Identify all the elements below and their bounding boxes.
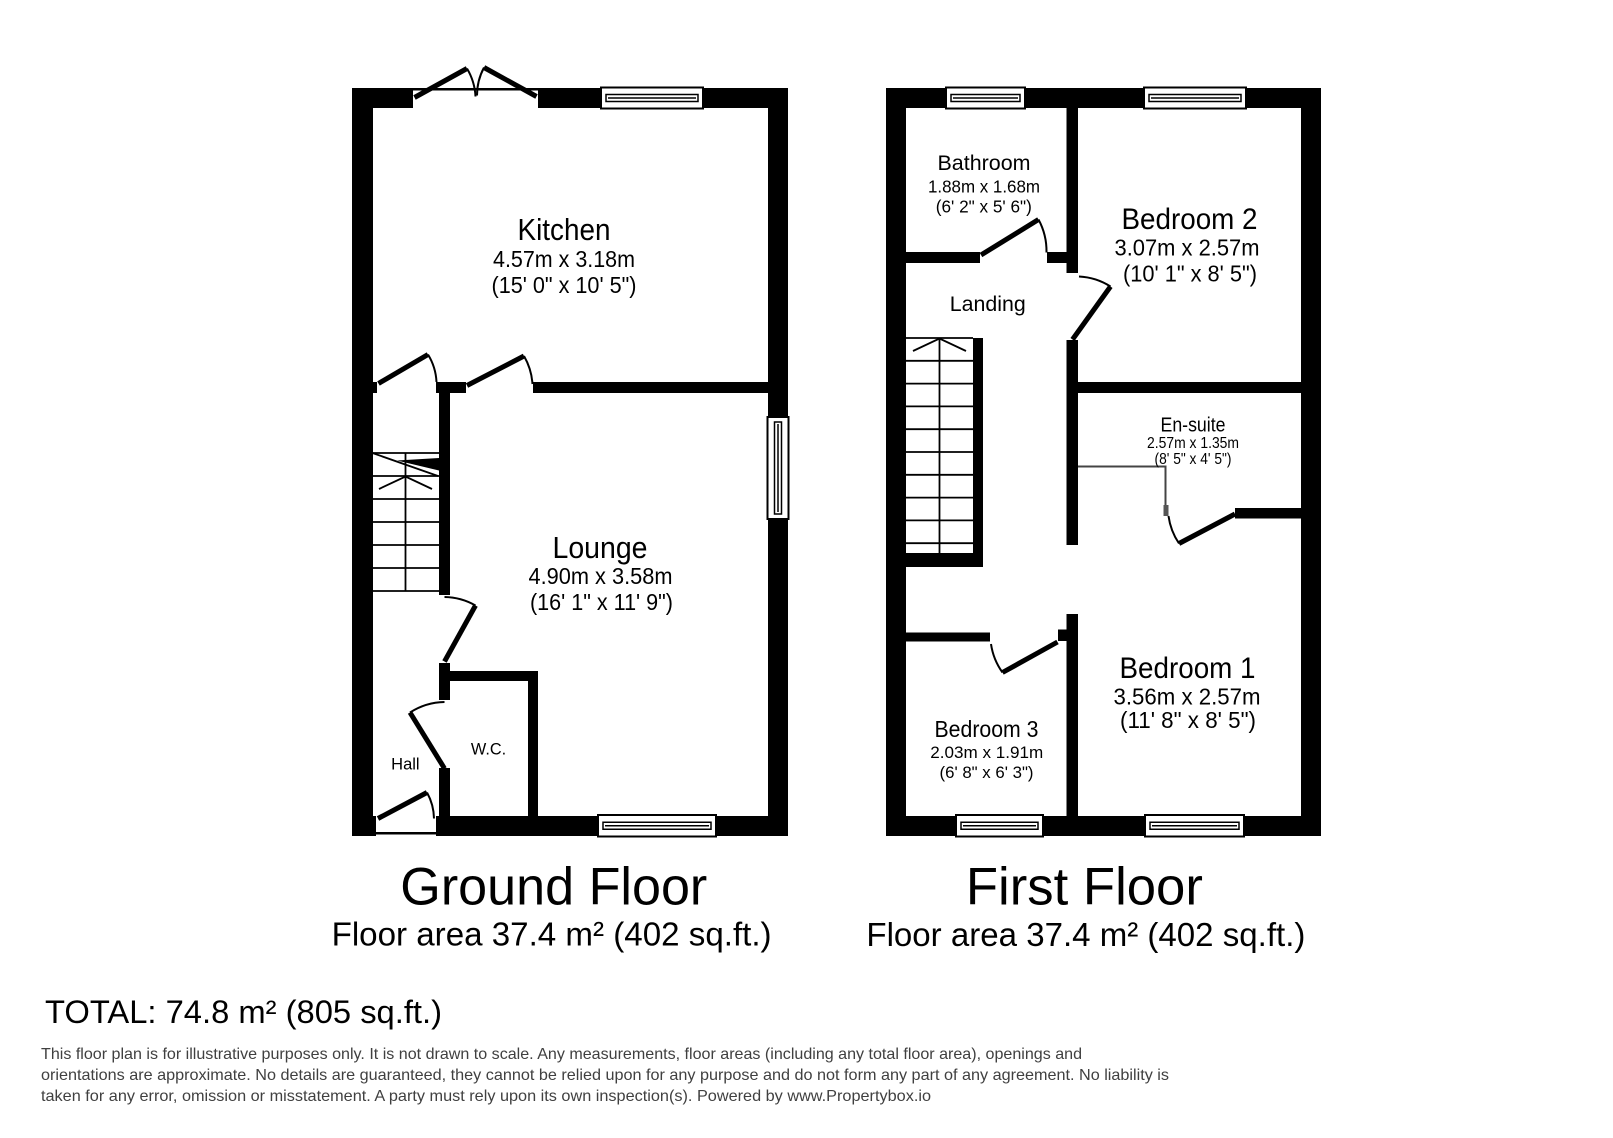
svg-text:Bedroom 1: Bedroom 1 — [1120, 652, 1256, 685]
svg-text:orientations are approximate.: orientations are approximate. No details… — [41, 1067, 1169, 1084]
svg-text:(8' 5" x 4' 5"): (8' 5" x 4' 5") — [1155, 451, 1232, 468]
svg-text:TOTAL: 74.8 m² (805 sq.ft.): TOTAL: 74.8 m² (805 sq.ft.) — [45, 994, 442, 1030]
svg-text:3.56m x 2.57m: 3.56m x 2.57m — [1114, 684, 1261, 710]
svg-text:Lounge: Lounge — [553, 530, 648, 565]
svg-text:Floor area 37.4 m² (402 sq.ft.: Floor area 37.4 m² (402 sq.ft.) — [332, 917, 772, 954]
svg-text:Bedroom 2: Bedroom 2 — [1122, 203, 1258, 236]
svg-text:1.88m x 1.68m: 1.88m x 1.68m — [928, 176, 1040, 196]
svg-text:2.03m x 1.91m: 2.03m x 1.91m — [930, 744, 1043, 762]
svg-text:(15' 0" x 10' 5"): (15' 0" x 10' 5") — [492, 272, 637, 298]
svg-text:First Floor: First Floor — [966, 858, 1203, 917]
svg-text:Bathroom: Bathroom — [938, 151, 1031, 175]
svg-text:W.C.: W.C. — [471, 741, 506, 759]
svg-text:3.07m x 2.57m: 3.07m x 2.57m — [1115, 235, 1260, 261]
svg-text:(6' 8" x 6' 3"): (6' 8" x 6' 3") — [940, 764, 1034, 782]
svg-text:2.57m x 1.35m: 2.57m x 1.35m — [1147, 435, 1239, 452]
svg-text:(6' 2" x 5' 6"): (6' 2" x 5' 6") — [936, 197, 1032, 217]
svg-text:taken for any error, omission: taken for any error, omission or misstat… — [41, 1088, 931, 1105]
svg-text:4.57m x 3.18m: 4.57m x 3.18m — [493, 246, 635, 272]
svg-text:Bedroom 3: Bedroom 3 — [935, 716, 1039, 742]
svg-text:Hall: Hall — [391, 756, 419, 774]
svg-text:Landing: Landing — [950, 293, 1026, 316]
svg-text:This floor plan is for illustr: This floor plan is for illustrative purp… — [41, 1046, 1082, 1063]
svg-text:(16' 1" x 11' 9"): (16' 1" x 11' 9") — [530, 589, 673, 615]
svg-text:(10' 1" x 8' 5"): (10' 1" x 8' 5") — [1123, 261, 1257, 287]
svg-text:Floor area 37.4 m² (402 sq.ft.: Floor area 37.4 m² (402 sq.ft.) — [866, 917, 1305, 954]
svg-text:4.90m x 3.58m: 4.90m x 3.58m — [529, 563, 673, 589]
svg-text:En-suite: En-suite — [1161, 415, 1226, 437]
svg-text:(11' 8" x 8' 5"): (11' 8" x 8' 5") — [1120, 707, 1256, 733]
svg-text:Ground Floor: Ground Floor — [400, 858, 707, 917]
svg-text:Kitchen: Kitchen — [518, 212, 611, 247]
